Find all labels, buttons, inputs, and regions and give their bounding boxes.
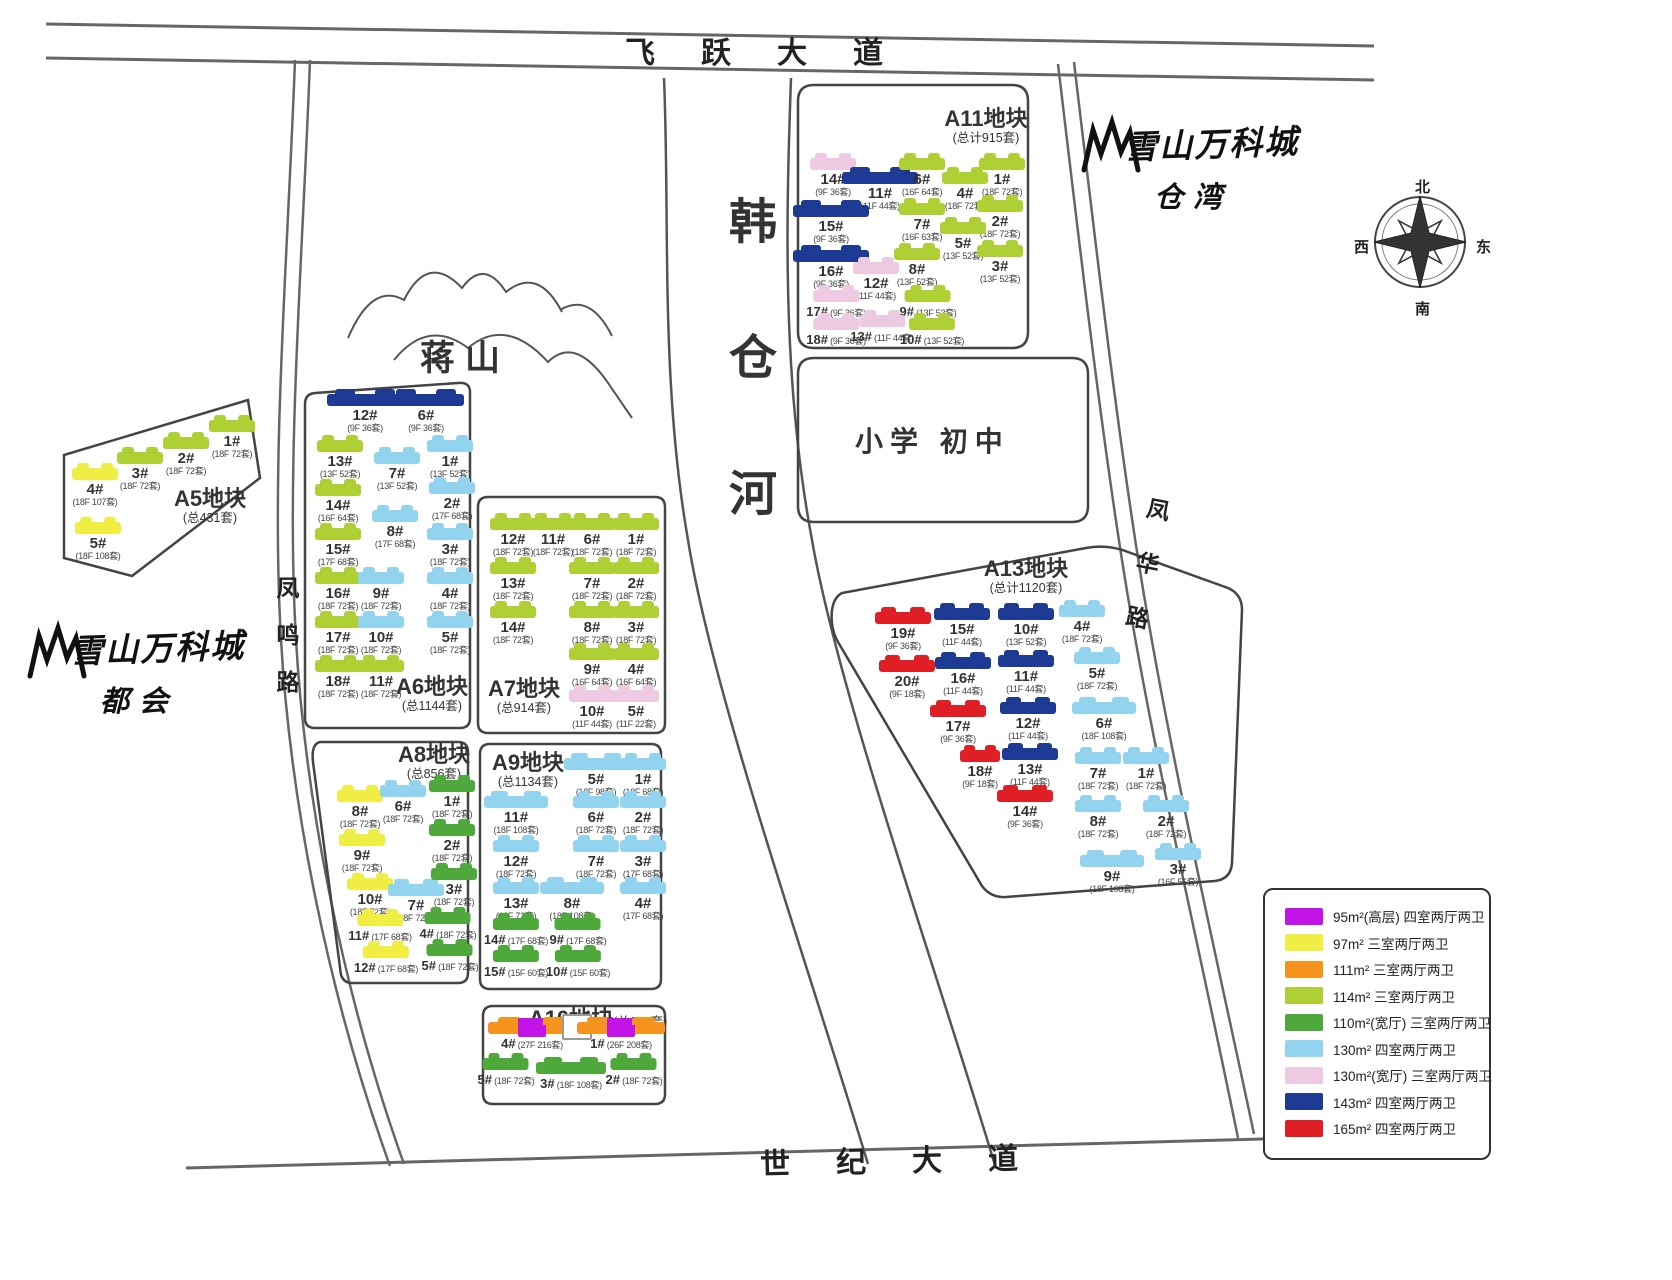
building-icon xyxy=(935,657,991,669)
building: 2#(17F 68套) xyxy=(429,482,475,521)
building-icon xyxy=(427,944,473,956)
building: 14#(16F 64套) xyxy=(315,484,361,523)
building: 3#(17F 68套) xyxy=(620,840,666,879)
building-icon xyxy=(1143,800,1189,812)
legend-label: 110m²(宽厅) 三室两厅两卫 xyxy=(1333,1012,1491,1032)
block-total-text: (总计1120套) xyxy=(984,581,1068,595)
building-spec: (16F 64套) xyxy=(315,514,361,523)
building: 4#(18F 72套) xyxy=(1059,605,1105,644)
building-spec: (18F 107套) xyxy=(72,498,118,507)
building-number: 1# xyxy=(209,434,255,450)
building: 5#(11F 22套) xyxy=(613,690,659,729)
building-spec: (9F 36套) xyxy=(875,642,931,651)
building-icon xyxy=(620,796,666,808)
building: 2#(18F 72套) xyxy=(429,824,475,863)
building: 1# (26F 208套) xyxy=(577,1022,665,1053)
building: 3# (18F 108套) xyxy=(536,1062,606,1093)
building: 8#(18F 72套) xyxy=(569,606,615,645)
compass-west-label: 西 xyxy=(1354,236,1369,257)
building: 9# (17F 68套) xyxy=(550,918,607,949)
building-icon xyxy=(613,690,659,702)
building-icon xyxy=(1059,605,1105,617)
building: 12#(18F 72套) xyxy=(493,840,539,879)
building-spec: (13F 52套) xyxy=(922,336,965,346)
brand-sub-duhui: 都会 xyxy=(14,678,264,720)
building: 1#(18F 72套) xyxy=(1123,752,1169,791)
building-icon xyxy=(315,660,361,672)
building-spec: (18F 72套) xyxy=(427,646,473,655)
block-name-text: A7地块 xyxy=(488,676,560,701)
building: 18#(9F 18套) xyxy=(960,750,1000,789)
building-number: 6# xyxy=(899,172,945,188)
building-icon xyxy=(960,750,1000,762)
building-number: 7# xyxy=(899,217,945,233)
building-number: 13# xyxy=(317,454,363,470)
building-number: 3# xyxy=(117,466,163,482)
building-icon xyxy=(564,758,628,770)
building-number: 2# xyxy=(606,1072,620,1087)
building-spec: (18F 72套) xyxy=(613,548,659,557)
building: 7#(18F 72套) xyxy=(573,840,619,879)
building-icon xyxy=(315,616,361,628)
building-number: 6# xyxy=(569,532,615,548)
building: 11#(18F 72套) xyxy=(358,660,404,699)
block-total-text: (总914套) xyxy=(488,701,560,715)
building-number: 20# xyxy=(879,674,935,690)
building-spec: (18F 108套) xyxy=(1072,732,1136,741)
compass-north-label: 北 xyxy=(1415,176,1430,197)
building-spec: (18F 72套) xyxy=(163,467,209,476)
building-icon xyxy=(209,420,255,432)
building-icon xyxy=(117,452,163,464)
legend-label: 130m²(宽厅) 三室两厅两卫 xyxy=(1333,1065,1492,1085)
building-spec: (18F 72套) xyxy=(315,646,361,655)
building-spec: (18F 72套) xyxy=(620,826,666,835)
building-icon xyxy=(315,484,361,496)
building-icon xyxy=(859,315,905,327)
building-number: 10# xyxy=(569,704,615,720)
building: 6#(18F 72套) xyxy=(573,796,619,835)
block-title-a5: A5地块(总431套) xyxy=(174,486,246,526)
building-icon xyxy=(380,785,426,797)
building-icon xyxy=(427,528,473,540)
legend-swatch xyxy=(1285,987,1323,1004)
building-icon xyxy=(337,790,383,802)
building-number: 6# xyxy=(573,810,619,826)
building-number: 11# xyxy=(348,928,369,943)
building-number: 4# xyxy=(427,586,473,602)
building-spec: (18F 72套) xyxy=(358,690,404,699)
building-icon xyxy=(1002,748,1058,760)
building: 6#(9F 36套) xyxy=(388,394,464,433)
legend-label: 130m² 四室两厅两卫 xyxy=(1333,1039,1456,1059)
building-number: 4# xyxy=(613,662,659,678)
building-spec: (18F 72套) xyxy=(569,592,615,601)
building-number: 1# xyxy=(620,772,666,788)
legend-label: 114m² 三室两厅两卫 xyxy=(1333,986,1455,1006)
block-title-a7: A7地块(总914套) xyxy=(488,676,560,716)
building-spec: (11F 44套) xyxy=(1000,732,1056,741)
building-spec: (18F 72套) xyxy=(380,815,426,824)
building-icon xyxy=(1075,752,1121,764)
building-number: 5# xyxy=(1074,666,1120,682)
building-spec: (13F 52套) xyxy=(998,638,1054,647)
building-number: 7# xyxy=(573,854,619,870)
building: 16#(18F 72套) xyxy=(315,572,361,611)
building: 6#(18F 72套) xyxy=(380,785,426,824)
building: 4#(16F 64套) xyxy=(613,648,659,687)
building-number: 10# xyxy=(358,630,404,646)
building-icon xyxy=(425,912,471,924)
building: 5# (18F 72套) xyxy=(478,1058,535,1089)
brand-name-text: 雪山万科城 xyxy=(1123,115,1300,169)
building: 18#(18F 72套) xyxy=(315,660,361,699)
building-number: 5# xyxy=(75,536,121,552)
building-spec: (9F 36套) xyxy=(930,735,986,744)
building-icon xyxy=(431,868,477,880)
building-spec: (16F 64套) xyxy=(899,188,945,197)
building: 5#(18F 72套) xyxy=(1074,652,1120,691)
building-number: 11# xyxy=(358,674,404,690)
building: 2#(18F 72套) xyxy=(163,437,209,476)
legend-swatch xyxy=(1285,961,1323,978)
building-icon xyxy=(909,318,955,330)
building-spec: (18F 72套) xyxy=(337,820,383,829)
compass-south-label: 南 xyxy=(1415,298,1430,319)
building-spec: (18F 72套) xyxy=(427,558,473,567)
building-spec: (11F 44套) xyxy=(569,720,615,729)
road-label-fengming-road: 凤鸣路 xyxy=(269,576,303,717)
building-spec: (18F 72套) xyxy=(315,690,361,699)
building: 15#(9F 36套) xyxy=(793,205,869,244)
site-map: 飞跃大道 世纪大道 凤鸣路 凤华路 韩仓河 蒋山 小学 初中 雪山万科城 仓湾 … xyxy=(0,0,1672,1280)
block-total-text: (总431套) xyxy=(174,511,246,525)
building-icon xyxy=(72,468,118,480)
block-name-text: A11地块 xyxy=(944,106,1027,131)
building-spec: (13F 52套) xyxy=(374,482,420,491)
building-number: 14# xyxy=(490,620,536,636)
building-spec: (9F 36套) xyxy=(793,235,869,244)
building-icon xyxy=(1155,848,1201,860)
building-number: 8# xyxy=(540,896,604,912)
building: 3#(18F 72套) xyxy=(427,528,473,567)
building-spec: (16F 56套) xyxy=(1155,878,1201,887)
building-icon xyxy=(813,290,859,302)
building-icon xyxy=(620,840,666,852)
building: 4# (18F 72套) xyxy=(420,912,477,943)
building-spec: (18F 72套) xyxy=(436,962,479,972)
legend-swatch xyxy=(1285,1014,1323,1031)
legend-swatch xyxy=(1285,934,1323,951)
building-icon xyxy=(997,790,1053,802)
building-number: 1# xyxy=(427,454,473,470)
building-icon xyxy=(358,616,404,628)
legend-swatch xyxy=(1285,1093,1323,1110)
building-icon xyxy=(611,1058,657,1070)
building-icon xyxy=(577,1022,665,1034)
building: 5#(18F 98套) xyxy=(564,758,628,797)
brand-logo-duhui: 雪山万科城 都会 xyxy=(14,622,264,720)
building-number: 3# xyxy=(620,854,666,870)
building-number: 12# xyxy=(1000,716,1056,732)
building: 3#(18F 72套) xyxy=(117,452,163,491)
building: 6#(16F 64套) xyxy=(899,158,945,197)
river-label-hancang-river: 韩仓河 xyxy=(712,196,782,604)
building-icon xyxy=(905,290,951,302)
building-number: 14# xyxy=(997,804,1053,820)
building: 20#(9F 18套) xyxy=(879,660,935,699)
building-icon xyxy=(427,616,473,628)
building: 6#(18F 72套) xyxy=(569,518,615,557)
building-icon xyxy=(372,510,418,522)
building: 6#(18F 108套) xyxy=(1072,702,1136,741)
building-number: 9# xyxy=(339,848,385,864)
building-spec: (15F 60套) xyxy=(568,968,611,978)
building: 15# (15F 60套) xyxy=(484,950,548,981)
building-icon xyxy=(536,1062,606,1074)
building-spec: (18F 72套) xyxy=(620,1076,663,1086)
building-icon xyxy=(1080,855,1144,867)
building: 7#(18F 72套) xyxy=(569,562,615,601)
building-spec: (13F 52套) xyxy=(977,275,1023,284)
building-spec: (18F 108套) xyxy=(1080,885,1144,894)
compass: 北 南 西 东 xyxy=(1352,176,1492,316)
building: 8#(17F 68套) xyxy=(372,510,418,549)
block-name-text: A5地块 xyxy=(174,486,246,511)
building-icon xyxy=(899,158,945,170)
building-icon xyxy=(573,840,619,852)
legend: 95m²(高层) 四室两厅两卫97m² 三室两厅两卫111m² 三室两厅两卫11… xyxy=(1263,888,1491,1160)
building-icon xyxy=(358,660,404,672)
building-number: 8# xyxy=(569,620,615,636)
building-spec: (18F 72套) xyxy=(315,602,361,611)
building-number: 8# xyxy=(894,262,940,278)
building-number: 18# xyxy=(315,674,361,690)
building: 7#(13F 52套) xyxy=(374,452,420,491)
building-number: 15# xyxy=(934,622,990,638)
building-icon xyxy=(483,1058,529,1070)
building-number: 1# xyxy=(590,1036,604,1051)
legend-item: 110m²(宽厅) 三室两厅两卫 xyxy=(1285,1009,1489,1036)
building-number: 1# xyxy=(979,172,1025,188)
building-icon xyxy=(875,612,931,624)
building: 2# (18F 72套) xyxy=(606,1058,663,1089)
building-icon xyxy=(930,705,986,717)
building-spec: (18F 72套) xyxy=(209,450,255,459)
building-icon xyxy=(979,158,1025,170)
building: 14# (17F 68套) xyxy=(484,918,548,949)
building: 5# (18F 72套) xyxy=(422,944,479,975)
building: 11#(18F 108套) xyxy=(484,796,548,835)
building-number: 3# xyxy=(1155,862,1201,878)
building-number: 2# xyxy=(429,838,475,854)
building-icon xyxy=(427,440,473,452)
building-spec: (17F 68套) xyxy=(372,540,418,549)
block-name-text: A9地块 xyxy=(492,750,564,775)
building-number: 3# xyxy=(427,542,473,558)
building-number: 19# xyxy=(875,626,931,642)
building-spec: (11F 44套) xyxy=(935,687,991,696)
building: 3#(16F 56套) xyxy=(1155,848,1201,887)
building-icon xyxy=(357,914,403,926)
building-spec: (11F 22套) xyxy=(613,720,659,729)
building-number: 3# xyxy=(977,259,1023,275)
building-number: 10# xyxy=(347,892,393,908)
building: 12# (17F 68套) xyxy=(354,946,418,977)
building-icon xyxy=(75,522,121,534)
building-core xyxy=(607,1018,635,1037)
building-spec: (18F 72套) xyxy=(1074,682,1120,691)
building-spec: (18F 72套) xyxy=(431,898,477,907)
building-spec: (18F 72套) xyxy=(358,602,404,611)
building-number: 13# xyxy=(490,576,536,592)
building: 1#(18F 72套) xyxy=(429,780,475,819)
building: 11#(11F 44套) xyxy=(998,655,1054,694)
building-number: 9# xyxy=(569,662,615,678)
building-icon xyxy=(1000,702,1056,714)
building-number: 9# xyxy=(1080,869,1144,885)
building-number: 7# xyxy=(1075,766,1121,782)
building-icon xyxy=(977,200,1023,212)
building-number: 1# xyxy=(1123,766,1169,782)
building-icon xyxy=(569,690,615,702)
building-number: 10# xyxy=(998,622,1054,638)
building-spec: (18F 72套) xyxy=(1143,830,1189,839)
building: 4#(17F 68套) xyxy=(620,882,666,921)
building-number: 11# xyxy=(998,669,1054,685)
building-number: 5# xyxy=(478,1072,492,1087)
building-spec: (9F 36套) xyxy=(388,424,464,433)
building-spec: (18F 72套) xyxy=(427,602,473,611)
building: 10#(11F 44套) xyxy=(569,690,615,729)
building-number: 3# xyxy=(613,620,659,636)
building-spec: (9F 18套) xyxy=(879,690,935,699)
building-icon xyxy=(1075,800,1121,812)
building-number: 8# xyxy=(337,804,383,820)
building-spec: (17F 68套) xyxy=(429,512,475,521)
building-number: 8# xyxy=(1075,814,1121,830)
building: 4#(18F 107套) xyxy=(72,468,118,507)
building: 1#(18F 72套) xyxy=(979,158,1025,197)
building-number: 8# xyxy=(372,524,418,540)
building-spec: (9F 18套) xyxy=(960,780,1000,789)
building-spec: (18F 72套) xyxy=(490,636,536,645)
building: 5#(18F 108套) xyxy=(75,522,121,561)
legend-item: 143m² 四室两厅两卫 xyxy=(1285,1089,1489,1116)
building-icon xyxy=(429,780,475,792)
building-number: 15# xyxy=(793,219,869,235)
building: 7#(18F 72套) xyxy=(1075,752,1121,791)
building: 17#(9F 36套) xyxy=(930,705,986,744)
building: 15#(17F 68套) xyxy=(315,528,361,567)
building-number: 4# xyxy=(72,482,118,498)
building-number: 18# xyxy=(806,332,828,347)
building-number: 5# xyxy=(564,772,628,788)
building: 1#(18F 72套) xyxy=(613,518,659,557)
building-icon xyxy=(573,796,619,808)
block-name-text: A6地块 xyxy=(396,674,468,699)
building-number: 13# xyxy=(493,896,539,912)
legend-items: 95m²(高层) 四室两厅两卫97m² 三室两厅两卫111m² 三室两厅两卫11… xyxy=(1285,903,1489,1142)
legend-swatch xyxy=(1285,1120,1323,1137)
building-icon xyxy=(493,918,539,930)
block-total-text: (总计915套) xyxy=(944,131,1027,145)
building-number: 2# xyxy=(163,451,209,467)
building-number: 14# xyxy=(315,498,361,514)
legend-label: 111m² 三室两厅两卫 xyxy=(1333,959,1454,979)
legend-item: 97m² 三室两厅两卫 xyxy=(1285,930,1489,957)
legend-item: 165m² 四室两厅两卫 xyxy=(1285,1115,1489,1142)
building-spec: (18F 72套) xyxy=(1075,830,1121,839)
legend-label: 95m²(高层) 四室两厅两卫 xyxy=(1333,906,1485,926)
building-number: 6# xyxy=(388,408,464,424)
building-icon xyxy=(315,572,361,584)
building-number: 17# xyxy=(315,630,361,646)
building: 3#(18F 72套) xyxy=(613,606,659,645)
building-icon xyxy=(613,562,659,574)
building-icon xyxy=(540,882,604,894)
legend-label: 97m² 三室两厅两卫 xyxy=(1333,933,1449,953)
building-number: 12# xyxy=(493,854,539,870)
building-icon xyxy=(555,918,601,930)
building: 8#(18F 72套) xyxy=(1075,800,1121,839)
building-icon xyxy=(998,608,1054,620)
block-title-a11: A11地块(总计915套) xyxy=(944,106,1027,146)
building-icon xyxy=(569,518,615,530)
building: 12#(11F 44套) xyxy=(1000,702,1056,741)
building: 9#(16F 64套) xyxy=(569,648,615,687)
building-icon xyxy=(490,606,536,618)
building-icon xyxy=(894,248,940,260)
building-spec: (18F 72套) xyxy=(1059,635,1105,644)
building-spec: (17F 68套) xyxy=(376,964,419,974)
building-icon xyxy=(940,222,986,234)
building-spec: (18F 72套) xyxy=(492,1076,535,1086)
building-number: 4# xyxy=(620,896,666,912)
building-spec: (18F 72套) xyxy=(117,482,163,491)
building-spec: (18F 72套) xyxy=(339,864,385,873)
building-spec: (18F 72套) xyxy=(573,826,619,835)
building-icon xyxy=(427,572,473,584)
building-number: 10# xyxy=(546,964,568,979)
building-icon xyxy=(363,946,409,958)
building-number: 2# xyxy=(613,576,659,592)
building: 5#(18F 72套) xyxy=(427,616,473,655)
building-number: 16# xyxy=(935,671,991,687)
building-number: 4# xyxy=(1059,619,1105,635)
building-icon xyxy=(998,655,1054,667)
building-number: 10# xyxy=(900,332,922,347)
building-number: 15# xyxy=(315,542,361,558)
building-number: 6# xyxy=(380,799,426,815)
building-icon xyxy=(490,562,536,574)
building-spec: (16F 63套) xyxy=(899,233,945,242)
building: 10# (15F 60套) xyxy=(546,950,610,981)
building-spec: (27F 216套) xyxy=(516,1040,563,1050)
building: 3#(18F 72套) xyxy=(431,868,477,907)
building-number: 15# xyxy=(484,964,506,979)
building-number: 7# xyxy=(374,466,420,482)
building: 2#(18F 72套) xyxy=(620,796,666,835)
building: 8#(18F 72套) xyxy=(337,790,383,829)
legend-swatch xyxy=(1285,908,1323,925)
building-spec: (26F 208套) xyxy=(605,1040,652,1050)
building-number: 7# xyxy=(569,576,615,592)
building: 13#(13F 52套) xyxy=(317,440,363,479)
building-icon xyxy=(613,648,659,660)
legend-swatch xyxy=(1285,1040,1323,1057)
building: 1#(18F 72套) xyxy=(209,420,255,459)
